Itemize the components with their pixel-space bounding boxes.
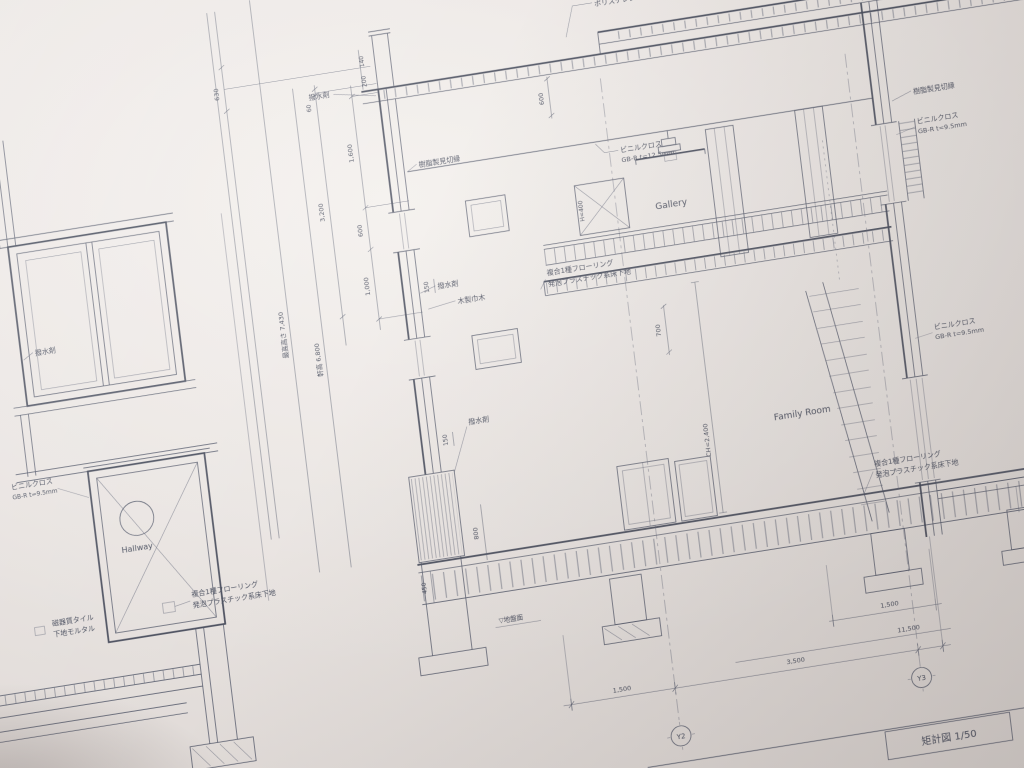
hassui-label-low: 撥水剤 bbox=[468, 414, 490, 426]
dim-1000: 1,000 bbox=[362, 277, 372, 297]
grid-label-y3: Y3 bbox=[916, 674, 927, 683]
room-label-hallway: Hallway bbox=[121, 541, 154, 555]
main-section-labels: アスファルト防水 保護Con t=100mm ポリスチレンフォーム t=40mm… bbox=[300, 0, 1010, 573]
roof-note-3: ポリスチレンフォーム t=40mm bbox=[594, 0, 697, 8]
trim-note-right: 樹脂製見切縁 bbox=[912, 80, 955, 96]
blueprint-sheet-svg: 撥水剤 ビニルクロス GB-R t=9.5mm Hallway 複合1種フローリ… bbox=[0, 0, 1024, 768]
title-block: 矩計図 1/50 bbox=[648, 633, 1024, 768]
habaki-label: 木製巾木 bbox=[457, 292, 486, 305]
dim-200: 200 bbox=[360, 75, 368, 88]
dim-bottom-3500: 3,500 bbox=[786, 656, 805, 667]
height-dimension-chains: 630 最高高さ 7,430 軒高 6,800 60 3,200 1,600 6… bbox=[202, 0, 452, 580]
room-label-family: Family Room bbox=[773, 404, 831, 423]
drawing-title: 矩計図 1/50 bbox=[921, 727, 978, 749]
dim-eave-height: 軒高 6,800 bbox=[312, 343, 325, 378]
dim-700: 700 bbox=[654, 324, 663, 338]
dim-3200: 3,200 bbox=[317, 203, 327, 223]
grid-label-y2: Y2 bbox=[675, 732, 686, 741]
dim-max-height: 最高高さ 7,430 bbox=[276, 311, 291, 359]
dim-bottom-1500: 1,500 bbox=[612, 684, 631, 695]
dim-630: 630 bbox=[212, 88, 221, 102]
dim-140: 140 bbox=[358, 55, 366, 68]
dim-600: 600 bbox=[356, 224, 365, 238]
grid-bubble-y2: Y2 bbox=[666, 720, 697, 752]
left-partial-drawing bbox=[0, 104, 288, 768]
room-label-gallery: Gallery bbox=[655, 197, 689, 212]
dim-right-1500: 1,500 bbox=[880, 599, 899, 610]
left-drawing-labels: 撥水剤 ビニルクロス GB-R t=9.5mm Hallway 複合1種フローリ… bbox=[0, 315, 277, 642]
dim-bottom-11500: 11,500 bbox=[897, 623, 920, 635]
dim-h400: H=400 bbox=[577, 200, 586, 222]
grid-bubble-y3: Y3 bbox=[906, 661, 937, 693]
hassui-label-left: 撥水剤 bbox=[34, 345, 56, 357]
grid-and-bottom-dimensions: 1,500 3,500 11,500 1,500 Y2 Y3 bbox=[489, 34, 961, 767]
dim-roof-600: 600 bbox=[537, 92, 546, 106]
photo-of-blueprint: 撥水剤 ビニルクロス GB-R t=9.5mm Hallway 複合1種フローリ… bbox=[0, 0, 1024, 768]
hassui-label-mid: 撥水剤 bbox=[437, 278, 459, 290]
dim-60: 60 bbox=[306, 104, 314, 113]
dim-1600: 1,600 bbox=[346, 144, 356, 164]
blueprint-sheet: 撥水剤 ビニルクロス GB-R t=9.5mm Hallway 複合1種フローリ… bbox=[0, 0, 1024, 768]
dim-450: 450 bbox=[421, 582, 429, 595]
dim-800: 800 bbox=[471, 527, 480, 541]
main-section-drawing: 140 200 H=400 bbox=[342, 0, 1024, 676]
dim-150-lower: 150 bbox=[442, 434, 450, 447]
hassui-label-top: 撥水剤 bbox=[308, 90, 330, 102]
dim-ch2400: CH=2,400 bbox=[701, 423, 713, 457]
ground-level-marker: ▽地盤面 bbox=[498, 612, 524, 625]
